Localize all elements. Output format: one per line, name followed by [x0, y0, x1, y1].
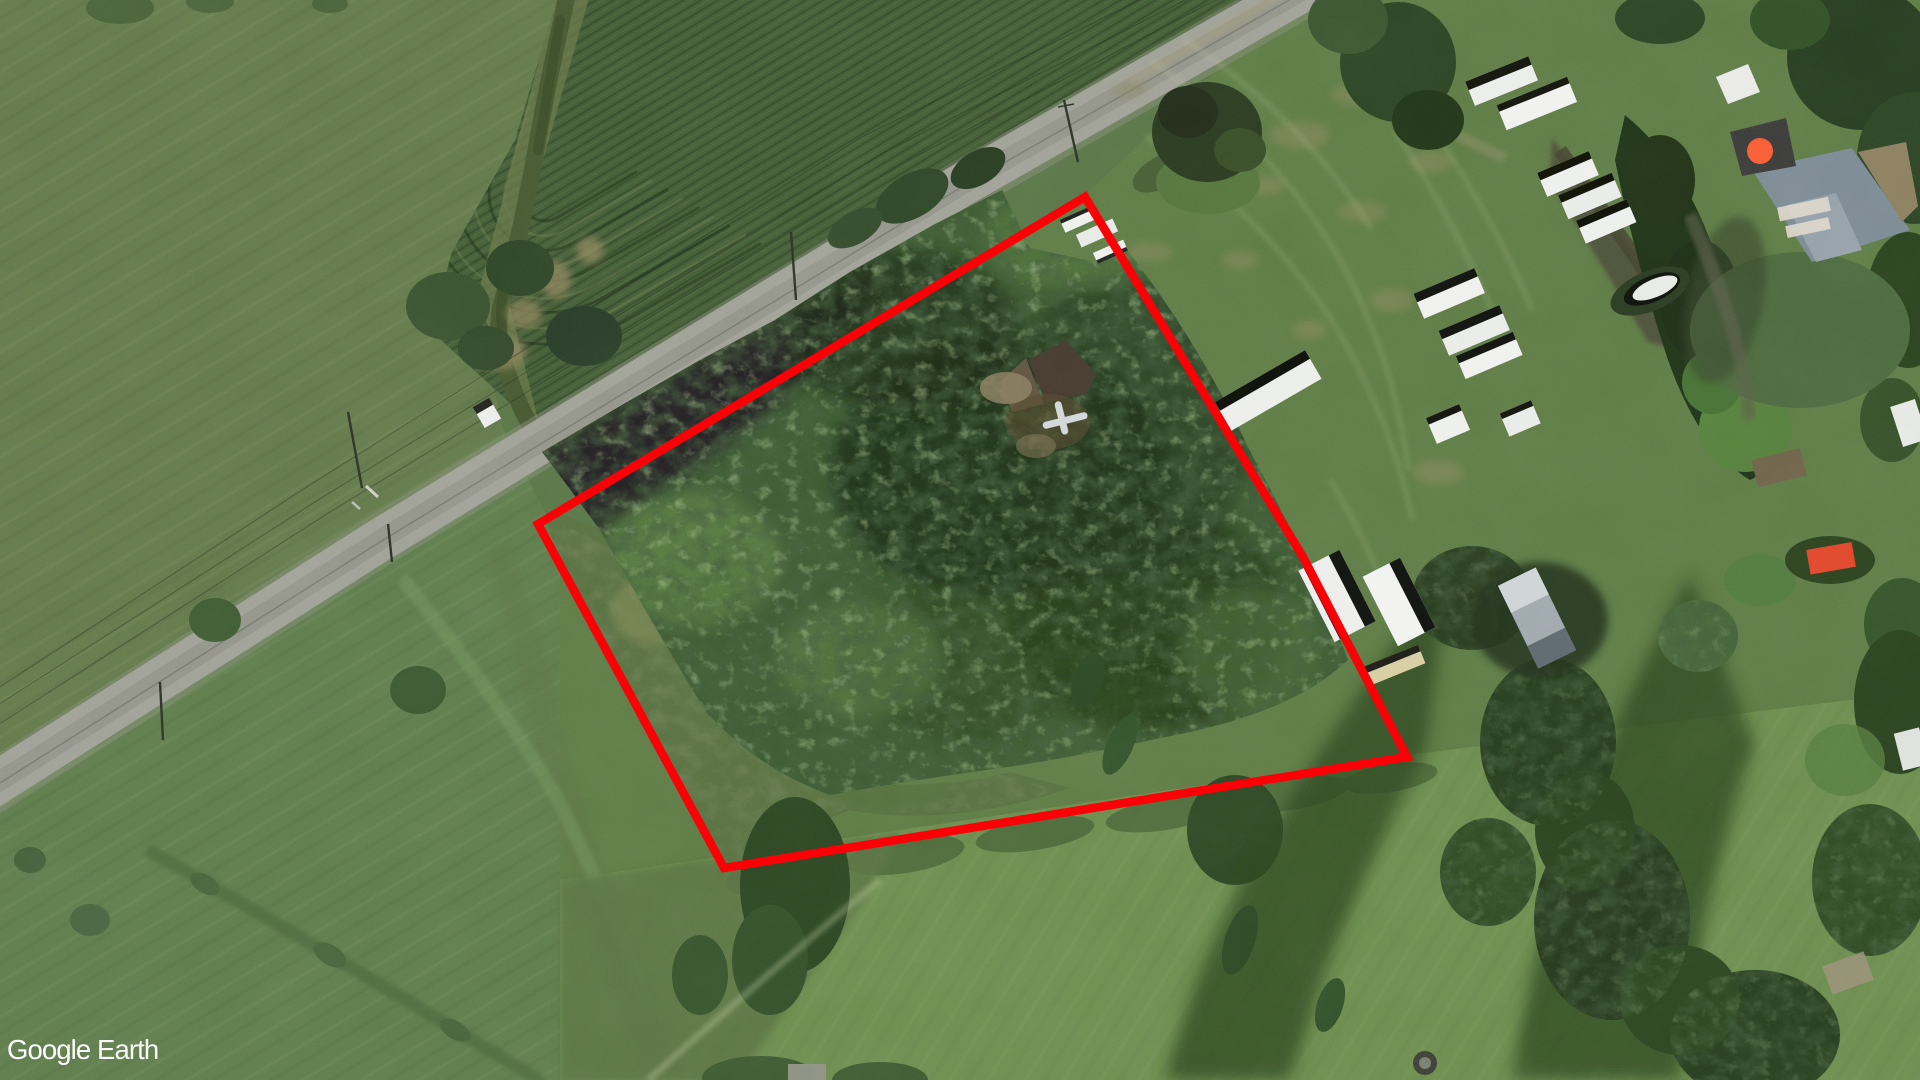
svg-text:Google Earth: Google Earth — [7, 1034, 158, 1065]
